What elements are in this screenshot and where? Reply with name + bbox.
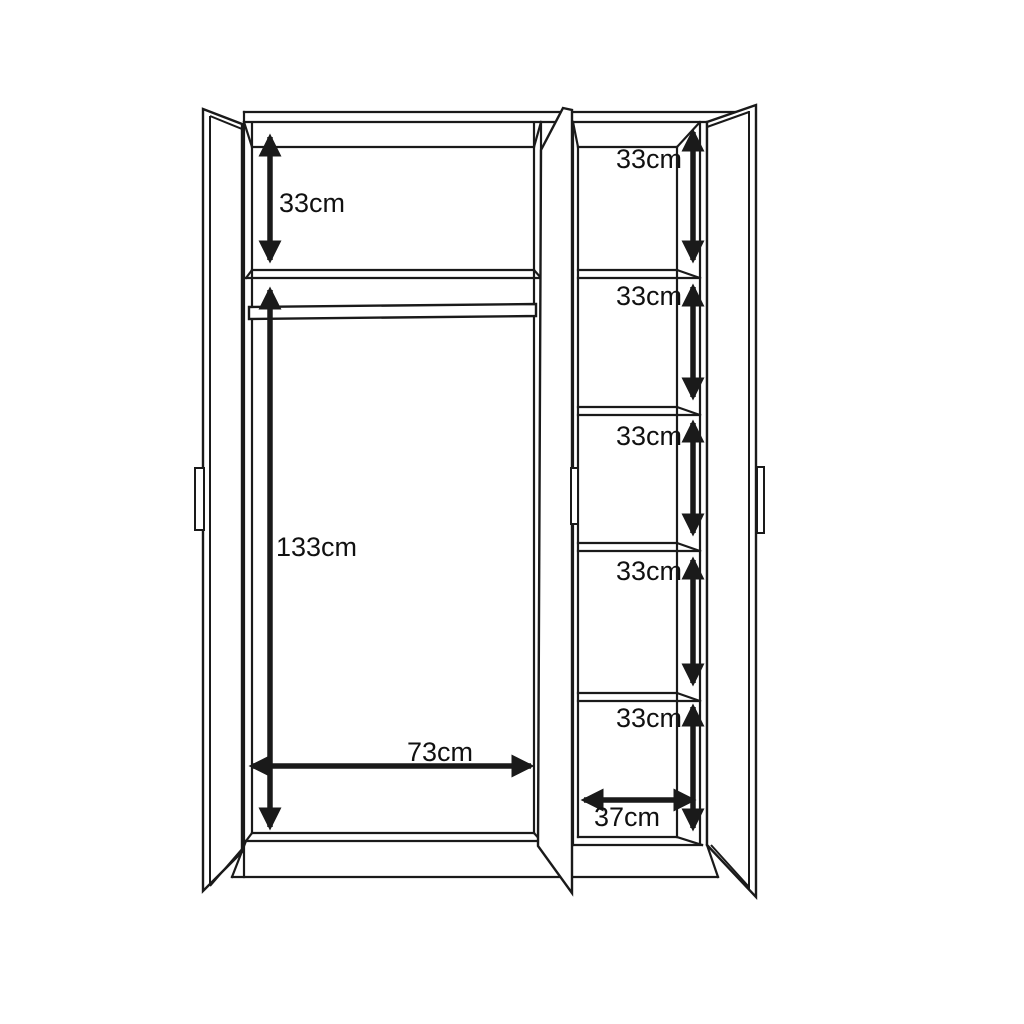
plinth — [232, 841, 718, 877]
dim-label-right-width: 37cm — [594, 802, 660, 832]
right-door — [707, 105, 764, 897]
dim-label-left-width: 73cm — [407, 737, 473, 767]
wardrobe-drawing: 33cm 133cm 73cm 33cm 33cm 33cm 33cm 33cm… — [0, 0, 1024, 1024]
dim-label-cell-4: 33cm — [616, 556, 682, 586]
shelf-1 — [578, 270, 700, 278]
left-door-handle — [195, 468, 204, 530]
top-shelf — [246, 270, 541, 278]
shelf-3 — [578, 543, 700, 551]
middle-door-handle — [571, 468, 578, 524]
dim-label-left-hanging: 133cm — [276, 532, 357, 562]
shelf-4 — [578, 693, 700, 701]
dim-label-cell-3: 33cm — [616, 421, 682, 451]
floor — [246, 833, 702, 845]
right-shelves — [578, 270, 700, 701]
dim-label-cell-1: 33cm — [616, 144, 682, 174]
dimension-labels: 33cm 133cm 73cm 33cm 33cm 33cm 33cm 33cm… — [276, 144, 682, 832]
shelf-2 — [578, 407, 700, 415]
hanging-rail — [249, 304, 536, 319]
left-door — [195, 109, 242, 891]
middle-door — [538, 108, 578, 893]
dim-label-cell-5: 33cm — [616, 703, 682, 733]
dim-label-cell-2: 33cm — [616, 281, 682, 311]
dim-label-left-top-shelf: 33cm — [279, 188, 345, 218]
wardrobe-diagram: 33cm 133cm 73cm 33cm 33cm 33cm 33cm 33cm… — [0, 0, 1024, 1024]
right-door-handle — [757, 467, 764, 533]
cabinet-frame — [244, 112, 740, 877]
